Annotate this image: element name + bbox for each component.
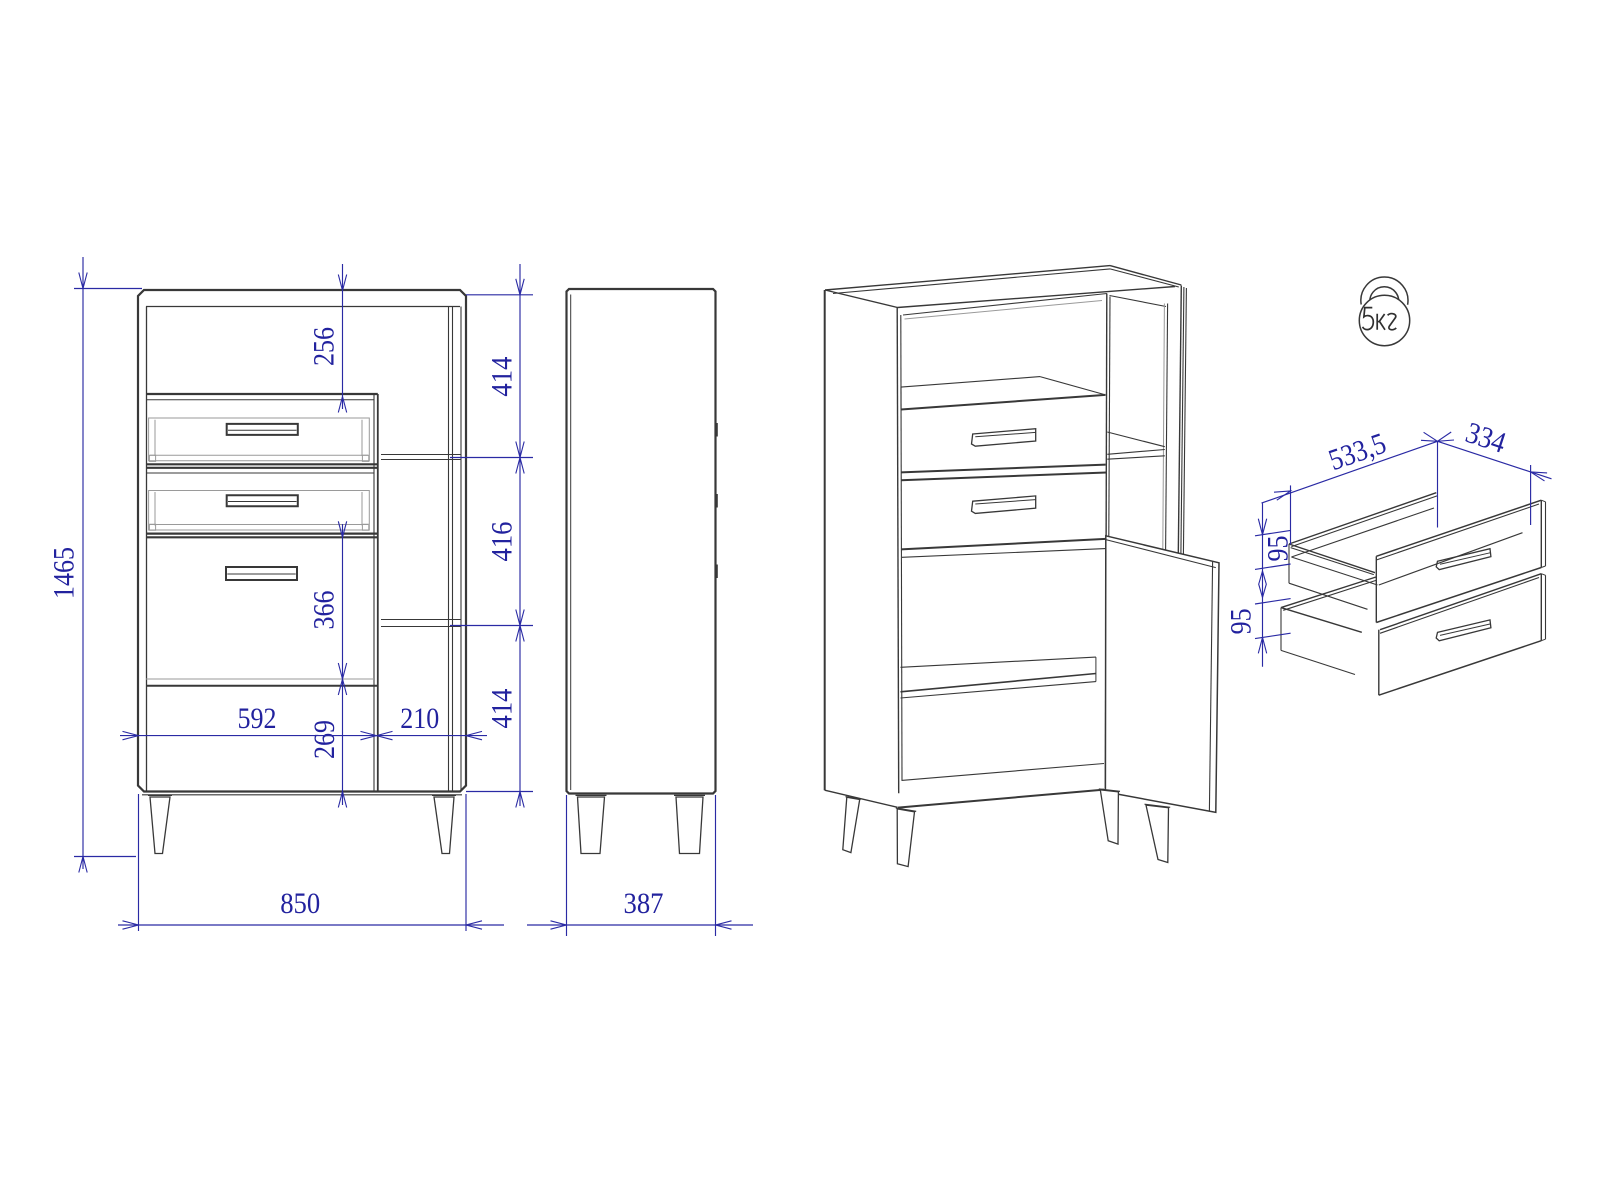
- svg-text:592: 592: [238, 702, 277, 735]
- svg-text:366: 366: [308, 591, 341, 630]
- svg-text:256: 256: [308, 327, 341, 366]
- svg-text:387: 387: [624, 887, 664, 920]
- svg-text:414: 414: [486, 689, 519, 729]
- svg-text:414: 414: [486, 357, 519, 397]
- svg-text:416: 416: [486, 522, 519, 562]
- svg-text:1465: 1465: [48, 547, 81, 599]
- svg-text:850: 850: [280, 887, 320, 920]
- svg-text:95: 95: [1224, 608, 1257, 634]
- svg-text:95: 95: [1261, 536, 1294, 562]
- svg-text:269: 269: [308, 720, 341, 759]
- svg-text:210: 210: [400, 702, 439, 735]
